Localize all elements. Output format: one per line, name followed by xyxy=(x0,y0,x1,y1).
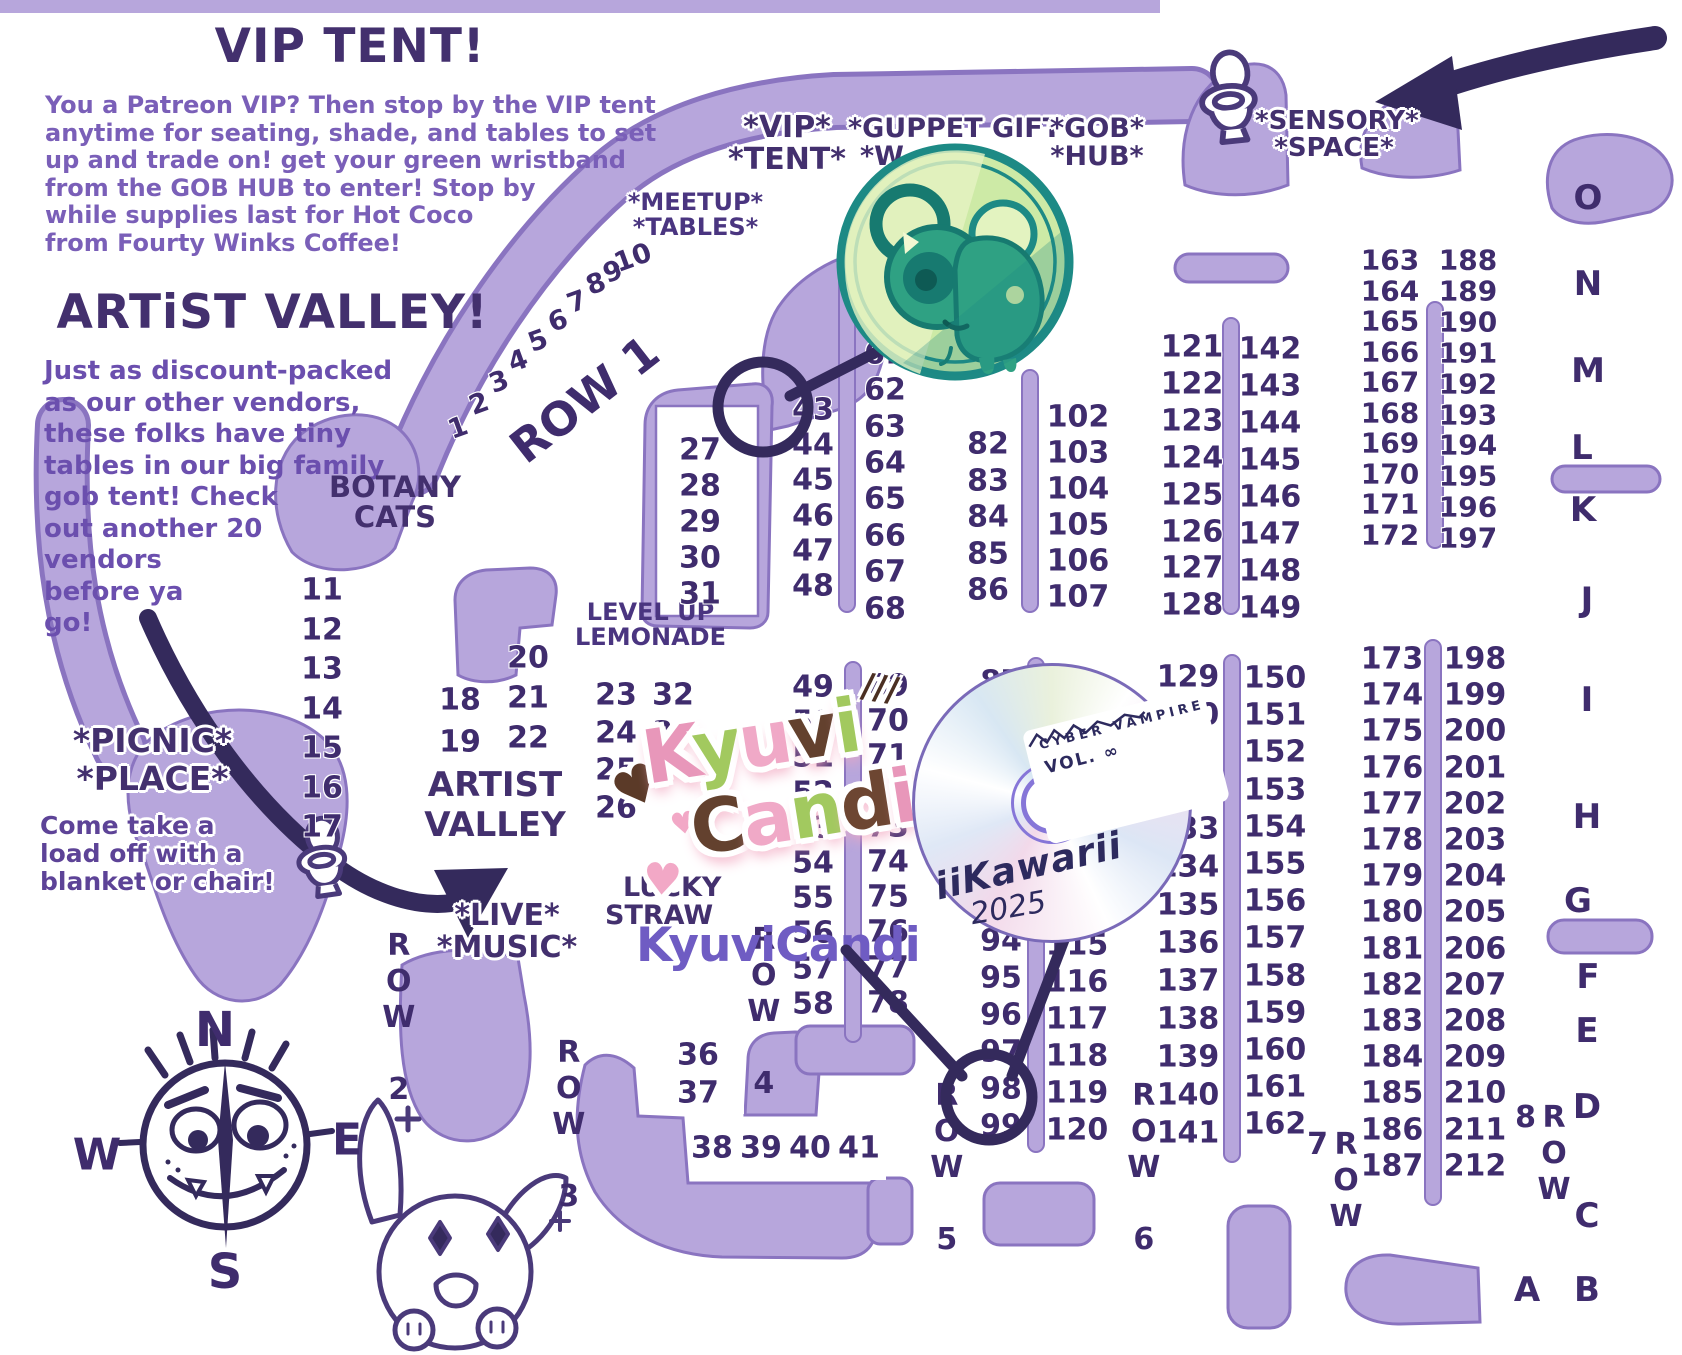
cd-handwriting: iiKawarii 2025 xyxy=(931,824,1134,943)
cd-sticker: CYBER VAMPIRE VOL. ∞ iiKawarii 2025 xyxy=(912,663,1192,943)
logo-dashes: /// xyxy=(858,665,901,710)
connector-line xyxy=(846,950,962,1076)
highlight-circle-98 xyxy=(946,1054,1032,1140)
connector-line xyxy=(1012,940,1064,1076)
highlight-circle-43 xyxy=(718,362,808,452)
heart-icon: ♥ xyxy=(641,854,683,907)
map-canvas: VIP TENT! You a Patreon VIP? Then stop b… xyxy=(0,0,1682,1355)
green-coin-sticker xyxy=(835,142,1075,382)
